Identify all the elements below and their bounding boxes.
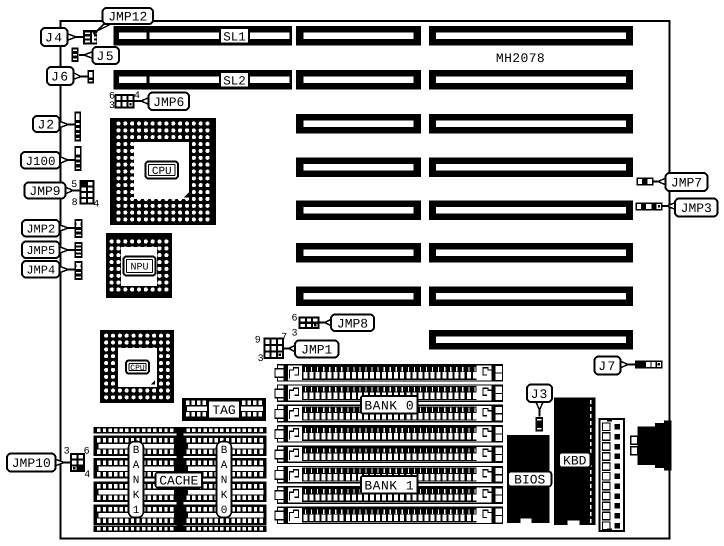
svg-text:JMP9: JMP9 [29,184,60,199]
svg-text:K: K [221,490,228,502]
svg-text:4: 4 [84,470,90,481]
svg-text:J100: J100 [25,155,55,169]
svg-text:J2: J2 [37,118,55,133]
svg-text:4: 4 [93,200,99,211]
svg-text:J5: J5 [96,49,115,64]
svg-text:CPU: CPU [152,166,172,178]
svg-text:K: K [133,490,140,502]
svg-text:N: N [221,475,228,487]
svg-text:JMP12: JMP12 [108,10,147,25]
svg-text:9: 9 [255,335,261,346]
svg-text:4: 4 [134,91,140,102]
svg-text:CPU: CPU [130,364,145,373]
svg-text:J3: J3 [531,387,549,402]
svg-text:JMP1: JMP1 [301,343,332,358]
svg-text:TAG: TAG [212,403,235,418]
svg-text:A: A [133,460,140,472]
svg-text:3: 3 [291,329,297,340]
svg-text:8: 8 [72,198,78,209]
svg-text:KBD: KBD [563,454,587,469]
svg-text:BANK 0: BANK 0 [364,398,414,413]
svg-text:JMP4: JMP4 [26,264,55,278]
svg-text:JMP8: JMP8 [337,316,368,331]
svg-text:0: 0 [221,505,228,517]
svg-text:CACHE: CACHE [159,474,198,489]
svg-text:SL2: SL2 [223,74,246,88]
svg-text:JMP5: JMP5 [26,244,55,258]
svg-text:B: B [133,445,140,457]
svg-text:SL1: SL1 [223,30,246,44]
svg-text:B: B [221,445,228,457]
svg-text:6: 6 [84,447,90,458]
svg-text:J4: J4 [45,31,64,46]
svg-text:JMP6: JMP6 [153,95,184,110]
svg-text:J7: J7 [598,359,617,374]
svg-text:MH2078: MH2078 [496,51,545,66]
svg-text:JMP3: JMP3 [681,201,712,216]
svg-text:BIOS: BIOS [514,473,545,488]
svg-text:3: 3 [64,447,70,458]
svg-text:JMP7: JMP7 [671,176,702,191]
svg-text:JMP10: JMP10 [12,456,51,471]
svg-text:N: N [133,475,140,487]
svg-text:J6: J6 [51,70,70,85]
svg-text:5: 5 [71,180,77,191]
svg-text:BANK 1: BANK 1 [364,478,414,493]
svg-text:6: 6 [291,314,297,325]
svg-text:A: A [221,460,228,472]
svg-text:1: 1 [133,505,140,517]
svg-text:JMP2: JMP2 [26,223,55,237]
svg-text:3: 3 [258,354,264,365]
svg-text:7: 7 [281,333,287,344]
svg-text:NPU: NPU [130,263,148,274]
svg-text:3: 3 [109,101,115,112]
